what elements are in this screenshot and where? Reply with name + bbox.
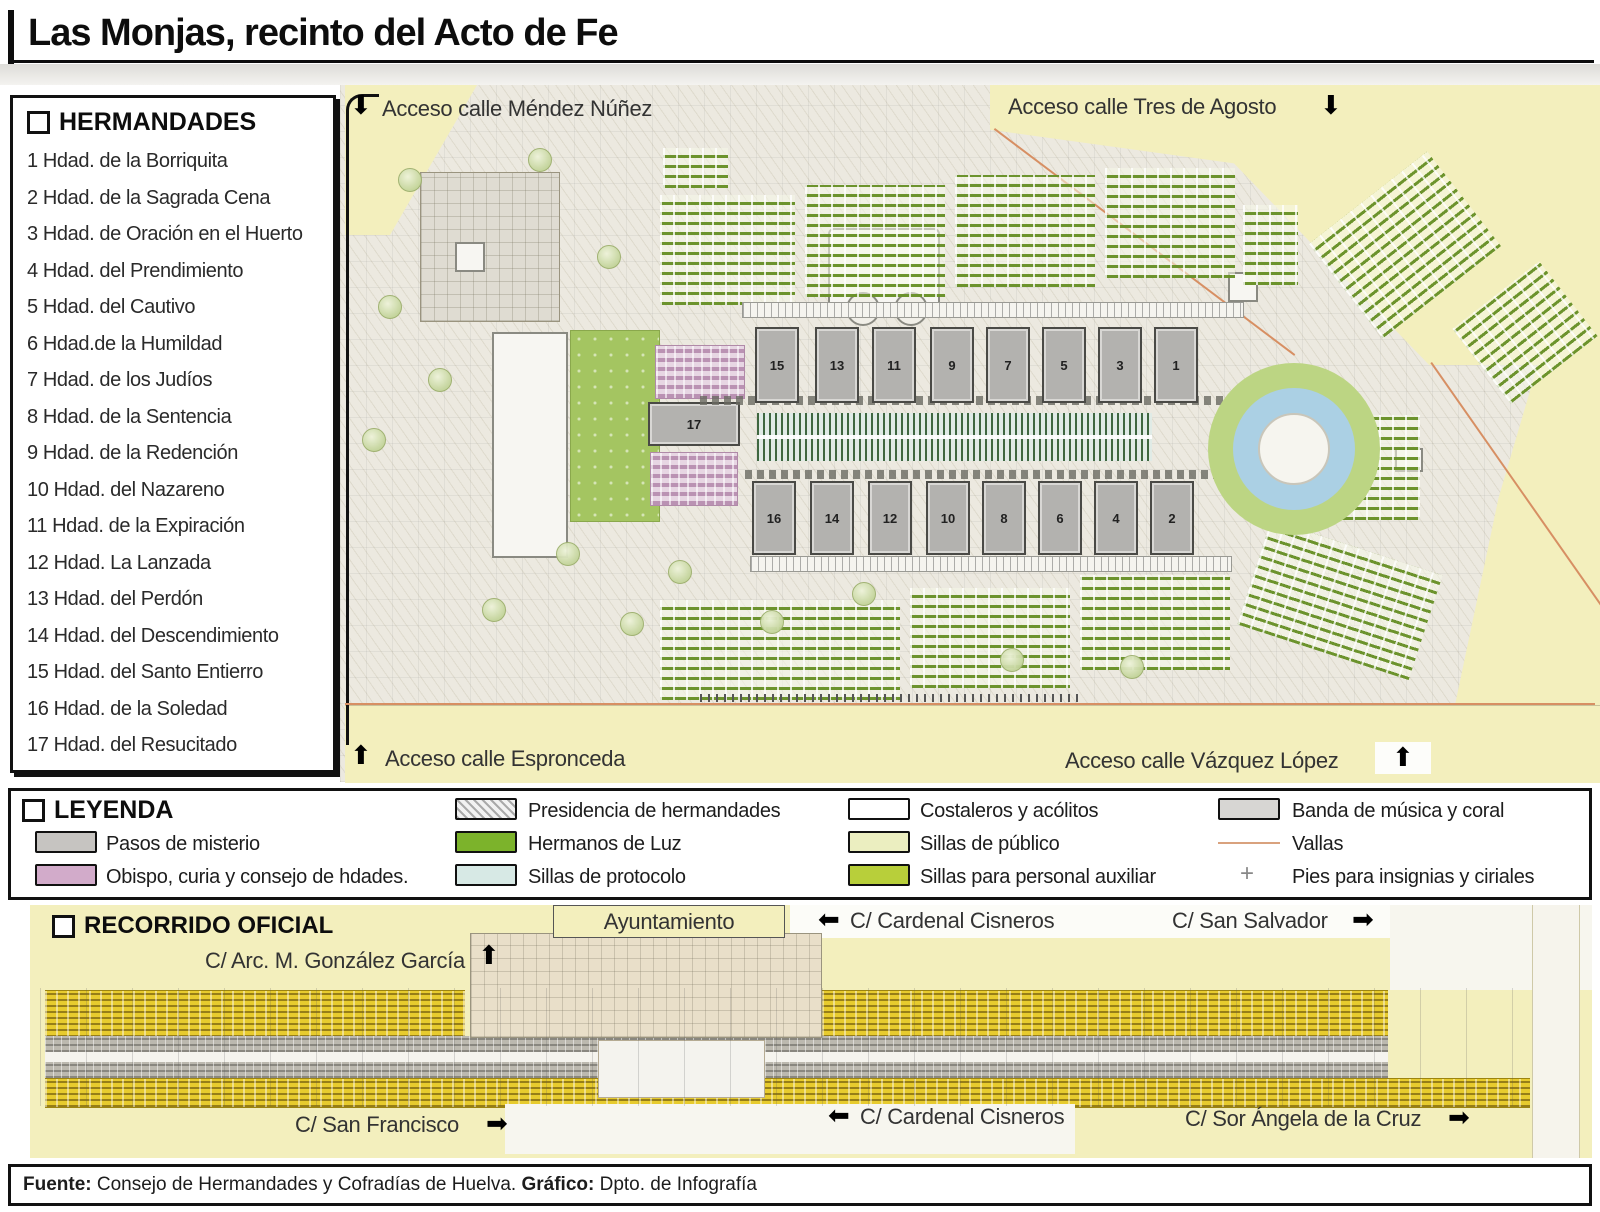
seating-block: [910, 588, 1070, 688]
infographic-page: Las Monjas, recinto del Acto de Fe 17: [0, 0, 1600, 1212]
paso: 9: [930, 327, 974, 403]
ayuntamiento-label-box: Ayuntamiento: [553, 905, 785, 938]
protocol-chairs-band: [757, 413, 1152, 461]
ayuntamiento-building: [470, 933, 822, 1038]
paso: 11: [872, 327, 916, 403]
valla-line: [345, 703, 1595, 705]
seating-block: [1080, 575, 1230, 670]
hermandad-item: 14 Hdad. del Descendimiento: [27, 618, 333, 655]
seating-block: [955, 175, 1095, 287]
arrow-down-icon: ⬇: [350, 92, 372, 118]
tree-icon: [1120, 655, 1144, 679]
legend-label: Banda de música y coral: [1292, 800, 1504, 823]
footer: Fuente: Consejo de Hermandades y Cofradí…: [8, 1164, 1592, 1206]
legend-label: Sillas de protocolo: [528, 866, 686, 889]
title-shade: [0, 64, 1600, 85]
legend-label: Pasos de misterio: [106, 833, 260, 856]
access-label-mendez-nunez: Acceso calle Méndez Núñez: [382, 96, 652, 122]
paso: 10: [926, 481, 970, 555]
paso-number: 14: [825, 511, 839, 526]
paso-number: 6: [1056, 511, 1063, 526]
checkbox-icon: [22, 799, 45, 822]
tree-icon: [668, 560, 692, 584]
hermandades-panel: HERMANDADES 1 Hdad. de la Borriquita 2 H…: [10, 95, 336, 773]
paso: 3: [1098, 327, 1142, 403]
arrow-left-icon: ⬅: [818, 906, 840, 932]
paso-number: 15: [770, 358, 784, 373]
bishop-curia-zone: [650, 452, 738, 506]
recinto-boundary-line: [346, 94, 379, 745]
building-block: [420, 172, 560, 322]
footer-source-text: Consejo de Hermandades y Cofradías de Hu…: [92, 1174, 522, 1196]
hermandad-item: 12 Hdad. La Lanzada: [27, 545, 333, 582]
roundabout-center: [1258, 413, 1330, 485]
hermandad-item: 3 Hdad. de Oración en el Huerto: [27, 216, 333, 253]
hermandad-item: 11 Hdad. de la Expiración: [27, 508, 333, 545]
arrow-right-icon: ➡: [1352, 906, 1374, 932]
seating-block: [805, 185, 945, 297]
paso-number: 2: [1168, 511, 1175, 526]
street-label-cardenal-cisneros-bottom: C/ Cardenal Cisneros: [860, 1104, 1064, 1130]
legend-swatch-banda: [1218, 798, 1280, 820]
paso: 8: [982, 481, 1026, 555]
grass-area: [570, 330, 660, 522]
access-label-tres-de-agosto: Acceso calle Tres de Agosto: [1008, 94, 1276, 120]
paso: 1: [1154, 327, 1198, 403]
paso-number: 1: [1172, 358, 1179, 373]
legend-swatch-protocolo: [455, 864, 517, 886]
recorrido-title-row: RECORRIDO OFICIAL: [52, 912, 333, 940]
legend-swatch-auxiliar: [848, 864, 910, 886]
paso: 5: [1042, 327, 1086, 403]
legend-swatch-publico: [848, 831, 910, 853]
paso-number: 11: [887, 358, 901, 373]
legend-swatch-obispo: [35, 864, 97, 886]
arrow-up-icon: ⬆: [1392, 744, 1414, 770]
legend-swatch-vallas-line: [1218, 842, 1280, 844]
paso-number: 9: [948, 358, 955, 373]
tree-icon: [482, 598, 506, 622]
hermandad-item: 6 Hdad.de la Humildad: [27, 326, 333, 363]
hermandad-item: 13 Hdad. del Perdón: [27, 581, 333, 618]
legend-swatch-pasos: [35, 831, 97, 853]
legend-label: Hermanos de Luz: [528, 833, 681, 856]
paso-number: 17: [687, 417, 701, 432]
paso: 7: [986, 327, 1030, 403]
arrow-up-icon: ⬆: [478, 942, 500, 968]
hermandad-item: 4 Hdad. del Prendimiento: [27, 253, 333, 290]
arrow-right-icon: ➡: [1448, 1104, 1470, 1130]
hermandad-item: 9 Hdad. de la Redención: [27, 435, 333, 472]
hermandad-item: 10 Hdad. del Nazareno: [27, 472, 333, 509]
seating-block: [1105, 168, 1235, 278]
building-white: [492, 332, 568, 558]
access-label-espronceda: Acceso calle Espronceda: [385, 746, 625, 772]
street-label-gonzalez-garcia: C/ Arc. M. González García: [150, 948, 465, 974]
arrow-down-icon: ⬇: [1320, 92, 1342, 118]
tree-icon: [760, 610, 784, 634]
hermandades-title-row: HERMANDADES: [27, 108, 333, 137]
paso-number: 8: [1000, 511, 1007, 526]
paso: 13: [815, 327, 859, 403]
street-label-cardenal-cisneros-top: C/ Cardenal Cisneros: [850, 908, 1054, 934]
street-label-san-francisco: C/ San Francisco: [295, 1112, 459, 1138]
costaleros-row: [750, 556, 1232, 572]
legend-label: Sillas para personal auxiliar: [920, 866, 1156, 889]
fence-ticks: [700, 694, 1080, 702]
hermandad-item: 8 Hdad. de la Sentencia: [27, 399, 333, 436]
tree-icon: [398, 168, 422, 192]
hermandad-item: 2 Hdad. de la Sagrada Cena: [27, 180, 333, 217]
hermandad-item: 17 Hdad. del Resucitado: [27, 727, 333, 764]
paso-number: 7: [1004, 358, 1011, 373]
recorrido-title: RECORRIDO OFICIAL: [84, 912, 333, 940]
hermandad-item: 16 Hdad. de la Soledad: [27, 691, 333, 728]
arrow-left-icon: ⬅: [828, 1102, 850, 1128]
legend-label: Sillas de público: [920, 833, 1059, 856]
arrow-up-icon: ⬆: [350, 742, 372, 768]
paso-number: 5: [1060, 358, 1067, 373]
paso: 14: [810, 481, 854, 555]
hermandad-item: 5 Hdad. del Cautivo: [27, 289, 333, 326]
legend-label: Vallas: [1292, 833, 1343, 856]
vertical-street: [1532, 905, 1580, 1158]
costaleros-row: [742, 302, 1244, 318]
paso-number: 4: [1112, 511, 1119, 526]
tree-icon: [378, 295, 402, 319]
seating-block: [1243, 205, 1298, 285]
ayuntamiento-label: Ayuntamiento: [604, 909, 735, 935]
legend-title-row: LEYENDA: [22, 796, 173, 825]
hermandad-item: 7 Hdad. de los Judíos: [27, 362, 333, 399]
stands-gold-band: [822, 990, 1388, 1038]
checkbox-icon: [27, 111, 50, 134]
paso: 6: [1038, 481, 1082, 555]
seating-block: [663, 148, 728, 188]
paso: 15: [755, 327, 799, 403]
plaza-white-area: [598, 1040, 765, 1098]
access-label-vazquez-lopez: Acceso calle Vázquez López: [1065, 748, 1339, 774]
paso-number: 12: [883, 511, 897, 526]
legend-label: Costaleros y acólitos: [920, 800, 1098, 823]
footer-credit-text: Dpto. de Infografía: [594, 1174, 757, 1196]
tree-icon: [852, 582, 876, 606]
paso-number: 10: [941, 511, 955, 526]
cross-icon: +: [1240, 860, 1254, 888]
paso-number: 16: [767, 511, 781, 526]
paso-number: 13: [830, 358, 844, 373]
legend-swatch-presidencia: [455, 798, 517, 820]
title-rule: [8, 60, 1594, 63]
bishop-curia-zone: [655, 345, 745, 399]
legend-swatch-costaleros: [848, 798, 910, 820]
legend-label: Pies para insignias y ciriales: [1292, 866, 1534, 889]
hermandad-item: 1 Hdad. de la Borriquita: [27, 143, 333, 180]
arrow-right-icon: ➡: [486, 1110, 508, 1136]
street-label-sor-angela: C/ Sor Ángela de la Cruz: [1185, 1106, 1421, 1132]
page-title: Las Monjas, recinto del Acto de Fe: [28, 12, 618, 55]
tree-icon: [620, 612, 644, 636]
tree-icon: [362, 428, 386, 452]
hermandad-item: 15 Hdad. del Santo Entierro: [27, 654, 333, 691]
seating-block: [660, 195, 795, 305]
legend-swatch-hermanos-luz: [455, 831, 517, 853]
stands-gold-band: [45, 990, 465, 1038]
paso: 4: [1094, 481, 1138, 555]
tree-icon: [428, 368, 452, 392]
tree-icon: [597, 245, 621, 269]
checkbox-icon: [52, 915, 75, 938]
footer-source-label: Fuente:: [23, 1174, 92, 1196]
paso: 2: [1150, 481, 1194, 555]
paso: 12: [868, 481, 912, 555]
street-label-san-salvador: C/ San Salvador: [1172, 908, 1328, 934]
paso: 16: [752, 481, 796, 555]
legend-label: Presidencia de hermandades: [528, 800, 780, 823]
tree-icon: [556, 542, 580, 566]
hermandades-title: HERMANDADES: [59, 108, 256, 137]
footer-credit-label: Gráfico:: [521, 1174, 594, 1196]
legend-label: Obispo, curia y consejo de hdades.: [106, 866, 408, 889]
paso-17: 17: [648, 402, 740, 446]
paso-number: 3: [1116, 358, 1123, 373]
tree-icon: [1000, 648, 1024, 672]
small-structure: [455, 242, 485, 272]
tree-icon: [528, 148, 552, 172]
legend-title: LEYENDA: [54, 796, 173, 825]
